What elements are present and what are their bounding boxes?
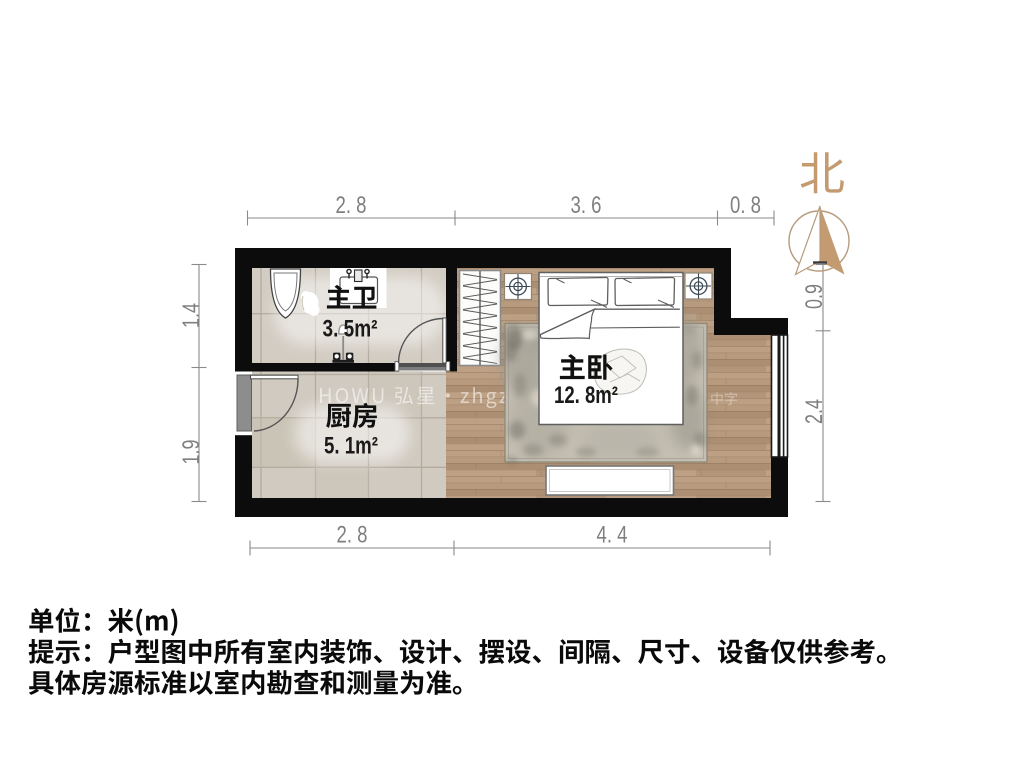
svg-text:3. 5m²: 3. 5m² (323, 316, 378, 343)
svg-text:5. 1m²: 5. 1m² (324, 433, 378, 460)
svg-text:3. 6: 3. 6 (571, 192, 602, 219)
svg-text:0. 8: 0. 8 (730, 192, 761, 219)
svg-text:4. 4: 4. 4 (597, 522, 628, 549)
svg-text:12. 8m²: 12. 8m² (554, 382, 618, 409)
svg-text:2. 8: 2. 8 (336, 192, 367, 219)
svg-text:1.4: 1.4 (179, 303, 205, 328)
svg-text:2. 8: 2. 8 (337, 522, 368, 549)
svg-text:1.9: 1.9 (179, 439, 205, 464)
svg-text:0.9: 0.9 (802, 284, 828, 309)
svg-text:2.4: 2.4 (802, 399, 828, 424)
